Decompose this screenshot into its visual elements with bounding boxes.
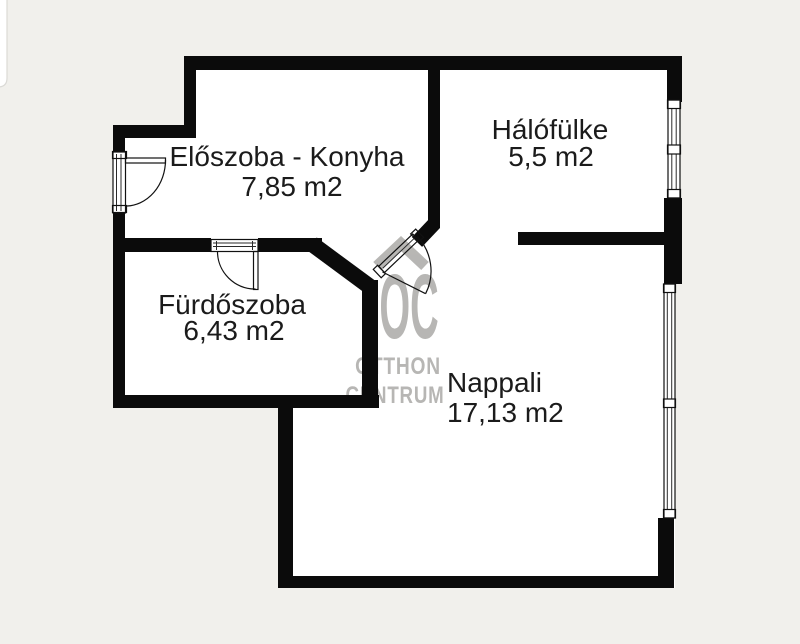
wall: [113, 238, 211, 252]
wall: [278, 576, 672, 588]
wall: [278, 400, 293, 588]
floorplan-image[interactable]: OC OTTHON CENTRUM: [0, 0, 800, 644]
wall: [658, 518, 674, 588]
adjacent-card-edge: [0, 0, 7, 87]
room-area-label: 7,85 m2: [241, 171, 342, 202]
room-area-label: 17,13 m2: [447, 397, 564, 428]
room-area-label: 6,43 m2: [183, 315, 284, 346]
room-name-label: Nappali: [447, 367, 542, 398]
wall: [362, 280, 378, 407]
wall: [113, 125, 125, 152]
wall: [667, 56, 682, 102]
room-name-label: Előszoba - Konyha: [169, 141, 404, 172]
wall: [428, 56, 440, 228]
wall: [113, 395, 379, 408]
window-icon: [664, 284, 676, 518]
room-area-label: 5,5 m2: [508, 141, 594, 172]
wall: [113, 125, 196, 138]
wall: [518, 232, 667, 245]
window-icon: [668, 100, 681, 198]
watermark-monogram: OC: [379, 256, 438, 359]
wall: [664, 198, 682, 284]
